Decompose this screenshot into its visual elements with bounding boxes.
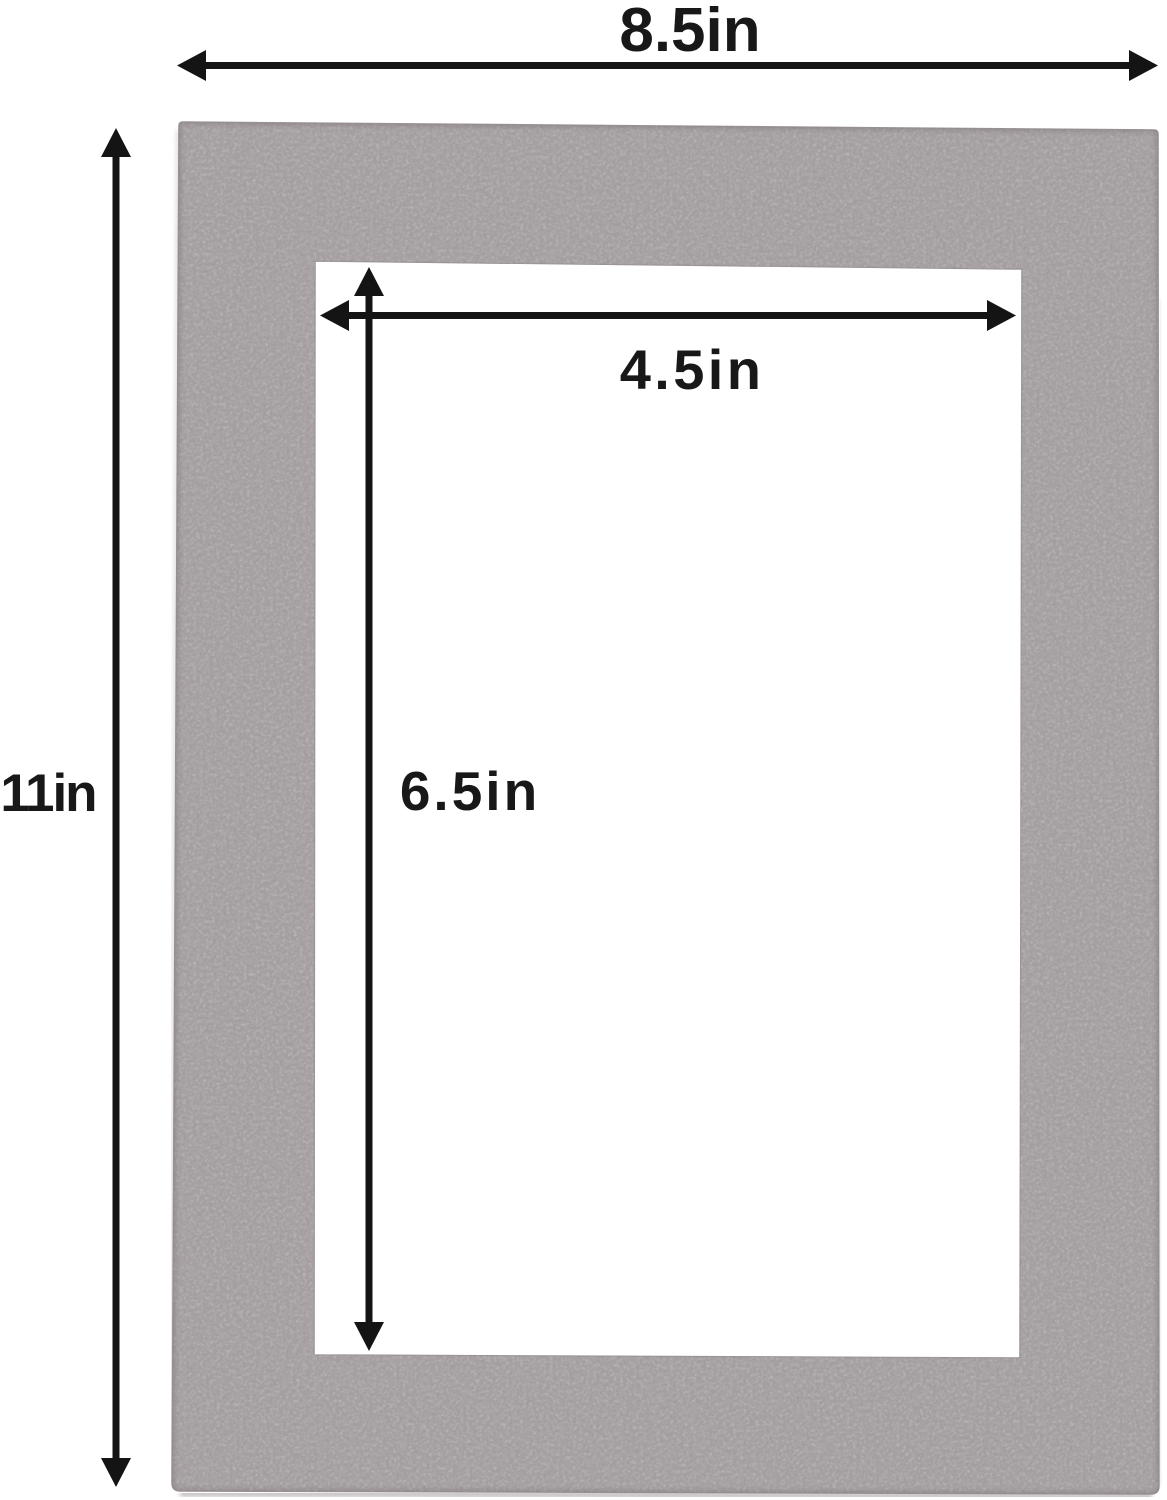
svg-text:6.5in: 6.5in	[400, 760, 540, 822]
svg-text:8.5in: 8.5in	[619, 0, 760, 65]
svg-text:4.5in: 4.5in	[620, 338, 765, 401]
svg-text:11in: 11in	[0, 764, 95, 823]
